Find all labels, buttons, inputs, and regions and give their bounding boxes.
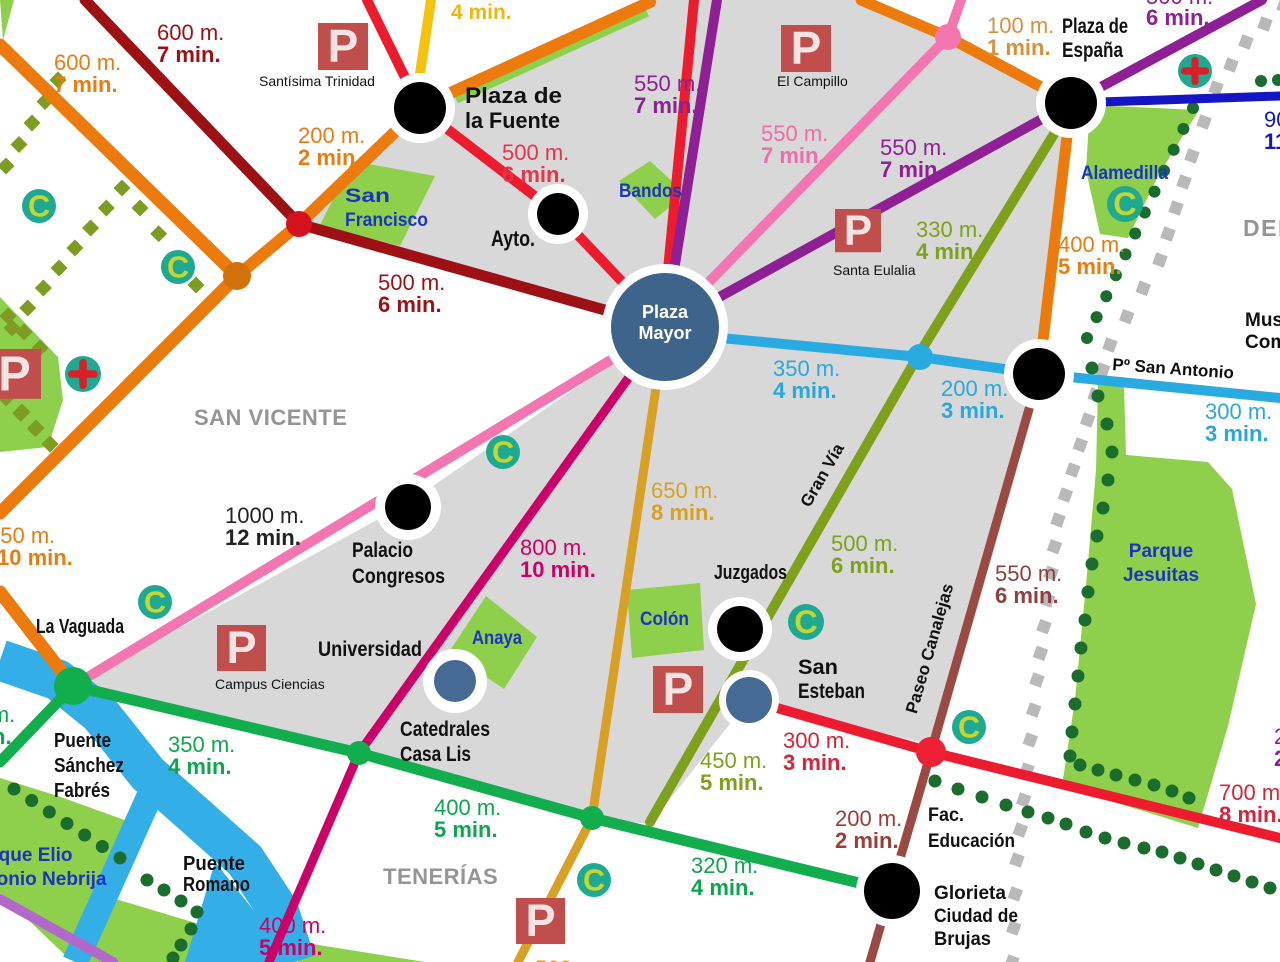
svg-text:Glorieta: Glorieta — [934, 883, 1006, 904]
svg-text:C: C — [167, 251, 189, 285]
svg-text:4 min.: 4 min. — [168, 754, 232, 779]
svg-text:3 min.: 3 min. — [941, 398, 1005, 423]
svg-text:DELICIAS: DELICIAS — [1243, 215, 1280, 241]
svg-text:11 min.: 11 min. — [1264, 129, 1280, 154]
svg-text:La Vaguada: La Vaguada — [36, 616, 125, 638]
svg-text:6 min.: 6 min. — [502, 162, 566, 187]
svg-text:C: C — [583, 864, 605, 898]
svg-text:C: C — [1113, 186, 1136, 222]
svg-text:Fabrés: Fabrés — [54, 780, 110, 802]
svg-text:Palacio: Palacio — [352, 539, 413, 562]
svg-text:500 m.: 500 m. — [535, 956, 602, 962]
svg-text:P: P — [791, 22, 822, 74]
svg-text:Fac.: Fac. — [928, 805, 964, 826]
svg-text:Mayor: Mayor — [638, 323, 691, 343]
svg-text:Esteban: Esteban — [798, 680, 865, 703]
svg-text:5 min.: 5 min. — [1058, 254, 1122, 279]
svg-text:6 min.: 6 min. — [1146, 5, 1210, 30]
svg-text:2 min.: 2 min. — [1274, 746, 1280, 771]
svg-text:la Fuente: la Fuente — [465, 108, 560, 133]
svg-text:7 min.: 7 min. — [54, 72, 118, 97]
svg-text:C: C — [958, 711, 980, 745]
svg-text:6 min.: 6 min. — [378, 292, 442, 317]
svg-text:P: P — [0, 347, 31, 401]
svg-text:TENERÍAS: TENERÍAS — [383, 864, 498, 889]
svg-text:Francisco: Francisco — [345, 210, 428, 231]
svg-text:Campus Ciencias: Campus Ciencias — [215, 676, 325, 692]
svg-text:2 min.: 2 min. — [298, 145, 362, 170]
svg-text:Congresos: Congresos — [352, 565, 445, 588]
svg-text:Universidad: Universidad — [318, 638, 422, 661]
svg-text:Plaza de: Plaza de — [465, 83, 562, 108]
svg-text:Comerci: Comerci — [1245, 332, 1280, 353]
svg-text:P: P — [525, 895, 555, 946]
svg-text:6 min.: 6 min. — [831, 553, 895, 578]
svg-text:5 min.: 5 min. — [0, 724, 12, 749]
svg-text:C: C — [144, 586, 166, 620]
svg-text:Ciudad de: Ciudad de — [934, 906, 1018, 927]
svg-text:6 min.: 6 min. — [995, 583, 1059, 608]
svg-text:7 min.: 7 min. — [157, 42, 221, 67]
svg-text:7 min.: 7 min. — [634, 93, 698, 118]
svg-text:Museo: Museo — [1245, 310, 1280, 331]
svg-text:Jesuitas: Jesuitas — [1123, 565, 1199, 586]
svg-text:4 min.: 4 min. — [451, 1, 512, 24]
svg-text:10 min.: 10 min. — [0, 545, 73, 570]
svg-text:Catedrales: Catedrales — [400, 718, 490, 741]
svg-text:2 min.: 2 min. — [835, 828, 899, 853]
svg-text:3 min.: 3 min. — [1205, 421, 1269, 446]
svg-text:Plaza: Plaza — [642, 302, 689, 322]
svg-text:Educación: Educación — [928, 831, 1015, 852]
svg-text:P: P — [844, 207, 872, 254]
svg-text:Casa Lis: Casa Lis — [400, 743, 471, 766]
svg-text:Plaza de: Plaza de — [1062, 15, 1128, 38]
svg-text:Alamedilla: Alamedilla — [1081, 163, 1168, 184]
svg-text:P: P — [328, 20, 359, 72]
svg-text:C: C — [28, 190, 50, 224]
svg-text:San: San — [345, 186, 390, 207]
svg-text:Juzgados: Juzgados — [714, 562, 787, 584]
svg-text:Antonio Nebrija: Antonio Nebrija — [0, 869, 107, 890]
svg-text:7 min.: 7 min. — [761, 143, 825, 168]
svg-text:Parque Elio: Parque Elio — [0, 845, 73, 866]
svg-text:8 min.: 8 min. — [651, 500, 715, 525]
svg-text:San: San — [798, 656, 838, 679]
svg-text:4 min.: 4 min. — [691, 875, 755, 900]
svg-text:4 min.: 4 min. — [916, 239, 980, 264]
svg-text:5 min.: 5 min. — [700, 770, 764, 795]
svg-text:España: España — [1062, 39, 1123, 62]
svg-text:El Campillo: El Campillo — [777, 73, 848, 89]
svg-text:Sánchez: Sánchez — [54, 755, 124, 777]
svg-text:Ayto.: Ayto. — [491, 226, 535, 251]
svg-text:10 min.: 10 min. — [520, 557, 596, 582]
svg-text:Colón: Colón — [640, 609, 689, 630]
svg-text:Parque: Parque — [1129, 541, 1193, 562]
svg-text:C: C — [794, 604, 817, 640]
svg-text:P: P — [226, 622, 256, 673]
svg-text:7 min.: 7 min. — [880, 157, 944, 182]
svg-text:3 min.: 3 min. — [783, 750, 847, 775]
svg-text:Santa Eulalia: Santa Eulalia — [833, 262, 916, 278]
svg-text:C: C — [492, 436, 514, 470]
svg-text:Puente: Puente — [54, 730, 111, 752]
svg-text:Brujas: Brujas — [934, 929, 991, 950]
svg-text:Romano: Romano — [183, 874, 250, 896]
svg-text:1 min.: 1 min. — [987, 35, 1051, 60]
svg-text:P: P — [663, 663, 694, 715]
svg-text:8 min.: 8 min. — [1219, 802, 1280, 827]
svg-text:Anaya: Anaya — [472, 628, 522, 649]
svg-text:Santísima Trinidad: Santísima Trinidad — [259, 73, 375, 89]
svg-text:Puente: Puente — [183, 853, 245, 875]
svg-text:12 min.: 12 min. — [225, 525, 301, 550]
svg-text:4 min.: 4 min. — [773, 378, 837, 403]
svg-text:Bandos: Bandos — [619, 181, 682, 202]
svg-text:5 min.: 5 min. — [434, 817, 498, 842]
svg-text:SAN VICENTE: SAN VICENTE — [194, 405, 347, 430]
svg-text:5 min.: 5 min. — [259, 935, 323, 960]
